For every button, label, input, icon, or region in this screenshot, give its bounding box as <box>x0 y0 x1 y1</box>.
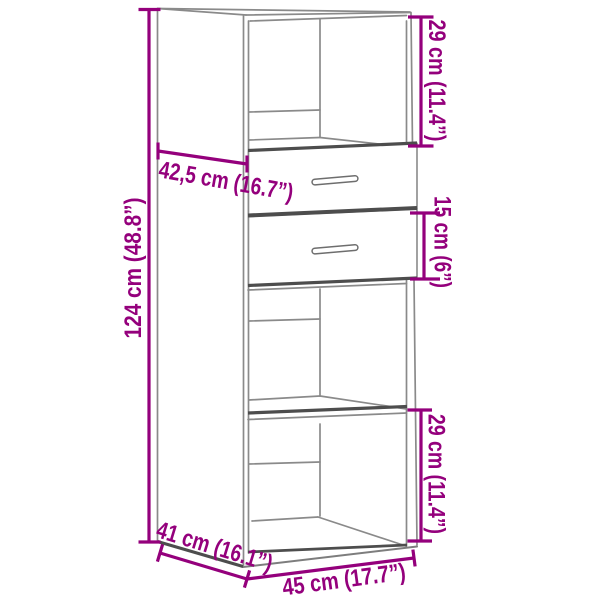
dimension-lines <box>139 10 441 588</box>
label-top-compartment-height: 29 cm (11.4”) <box>423 20 450 142</box>
cabinet-dimension-drawing: 124 cm (48.8”) 29 cm (11.4”) 15 cm (6”) … <box>0 0 600 600</box>
label-drawer-height: 15 cm (6”) <box>429 196 456 288</box>
label-width: 45 cm (17.7”) <box>281 559 407 600</box>
cabinet-carcass-lines <box>158 9 418 568</box>
label-total-height: 124 cm (48.8”) <box>120 198 147 339</box>
label-bottom-compartment-height: 29 cm (11.4”) <box>423 414 450 534</box>
dimension-labels: 124 cm (48.8”) 29 cm (11.4”) 15 cm (6”) … <box>120 20 456 600</box>
